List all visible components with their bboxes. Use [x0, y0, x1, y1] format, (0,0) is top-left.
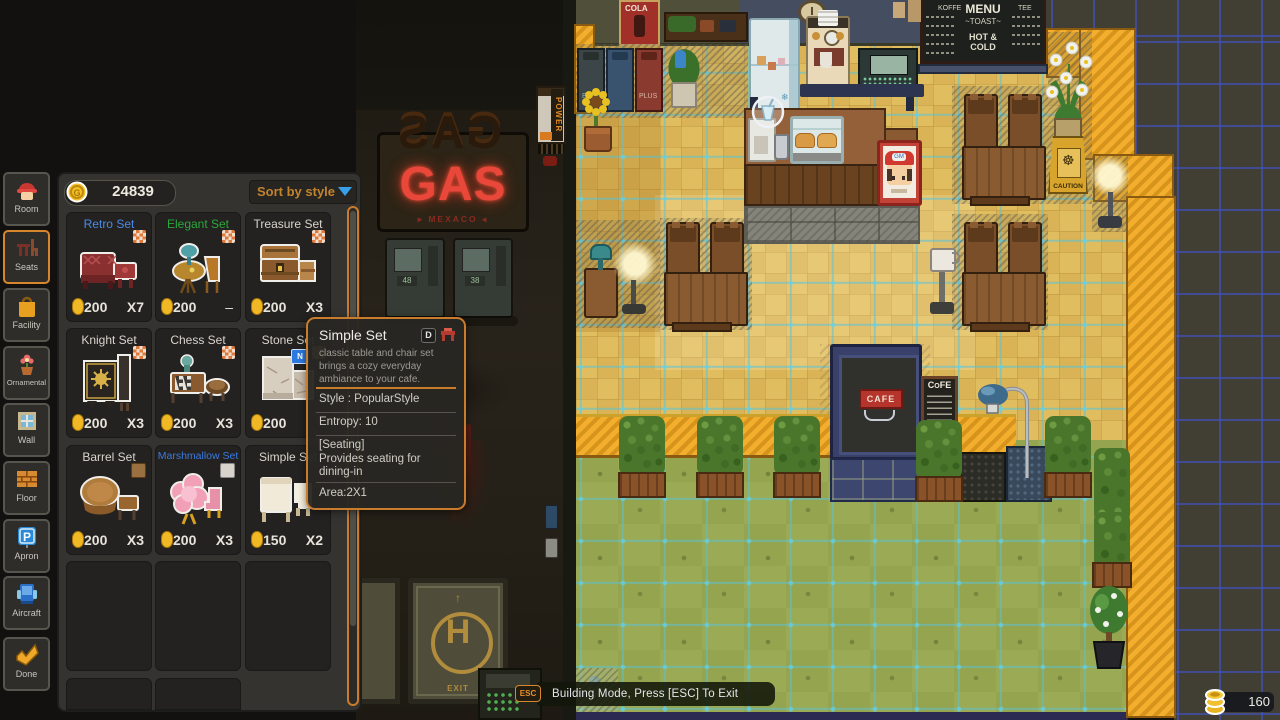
- svg-text:~TOAST~: ~TOAST~: [965, 17, 1001, 26]
- svg-text:P: P: [22, 530, 30, 544]
- svg-text:TEE: TEE: [1018, 5, 1032, 12]
- svg-text:HOT &: HOT &: [969, 32, 997, 42]
- svg-text:G: G: [73, 188, 80, 198]
- svg-text:MENU: MENU: [965, 2, 1000, 16]
- svg-text:KOFFE: KOFFE: [938, 5, 962, 12]
- svg-text:COLD: COLD: [970, 42, 996, 52]
